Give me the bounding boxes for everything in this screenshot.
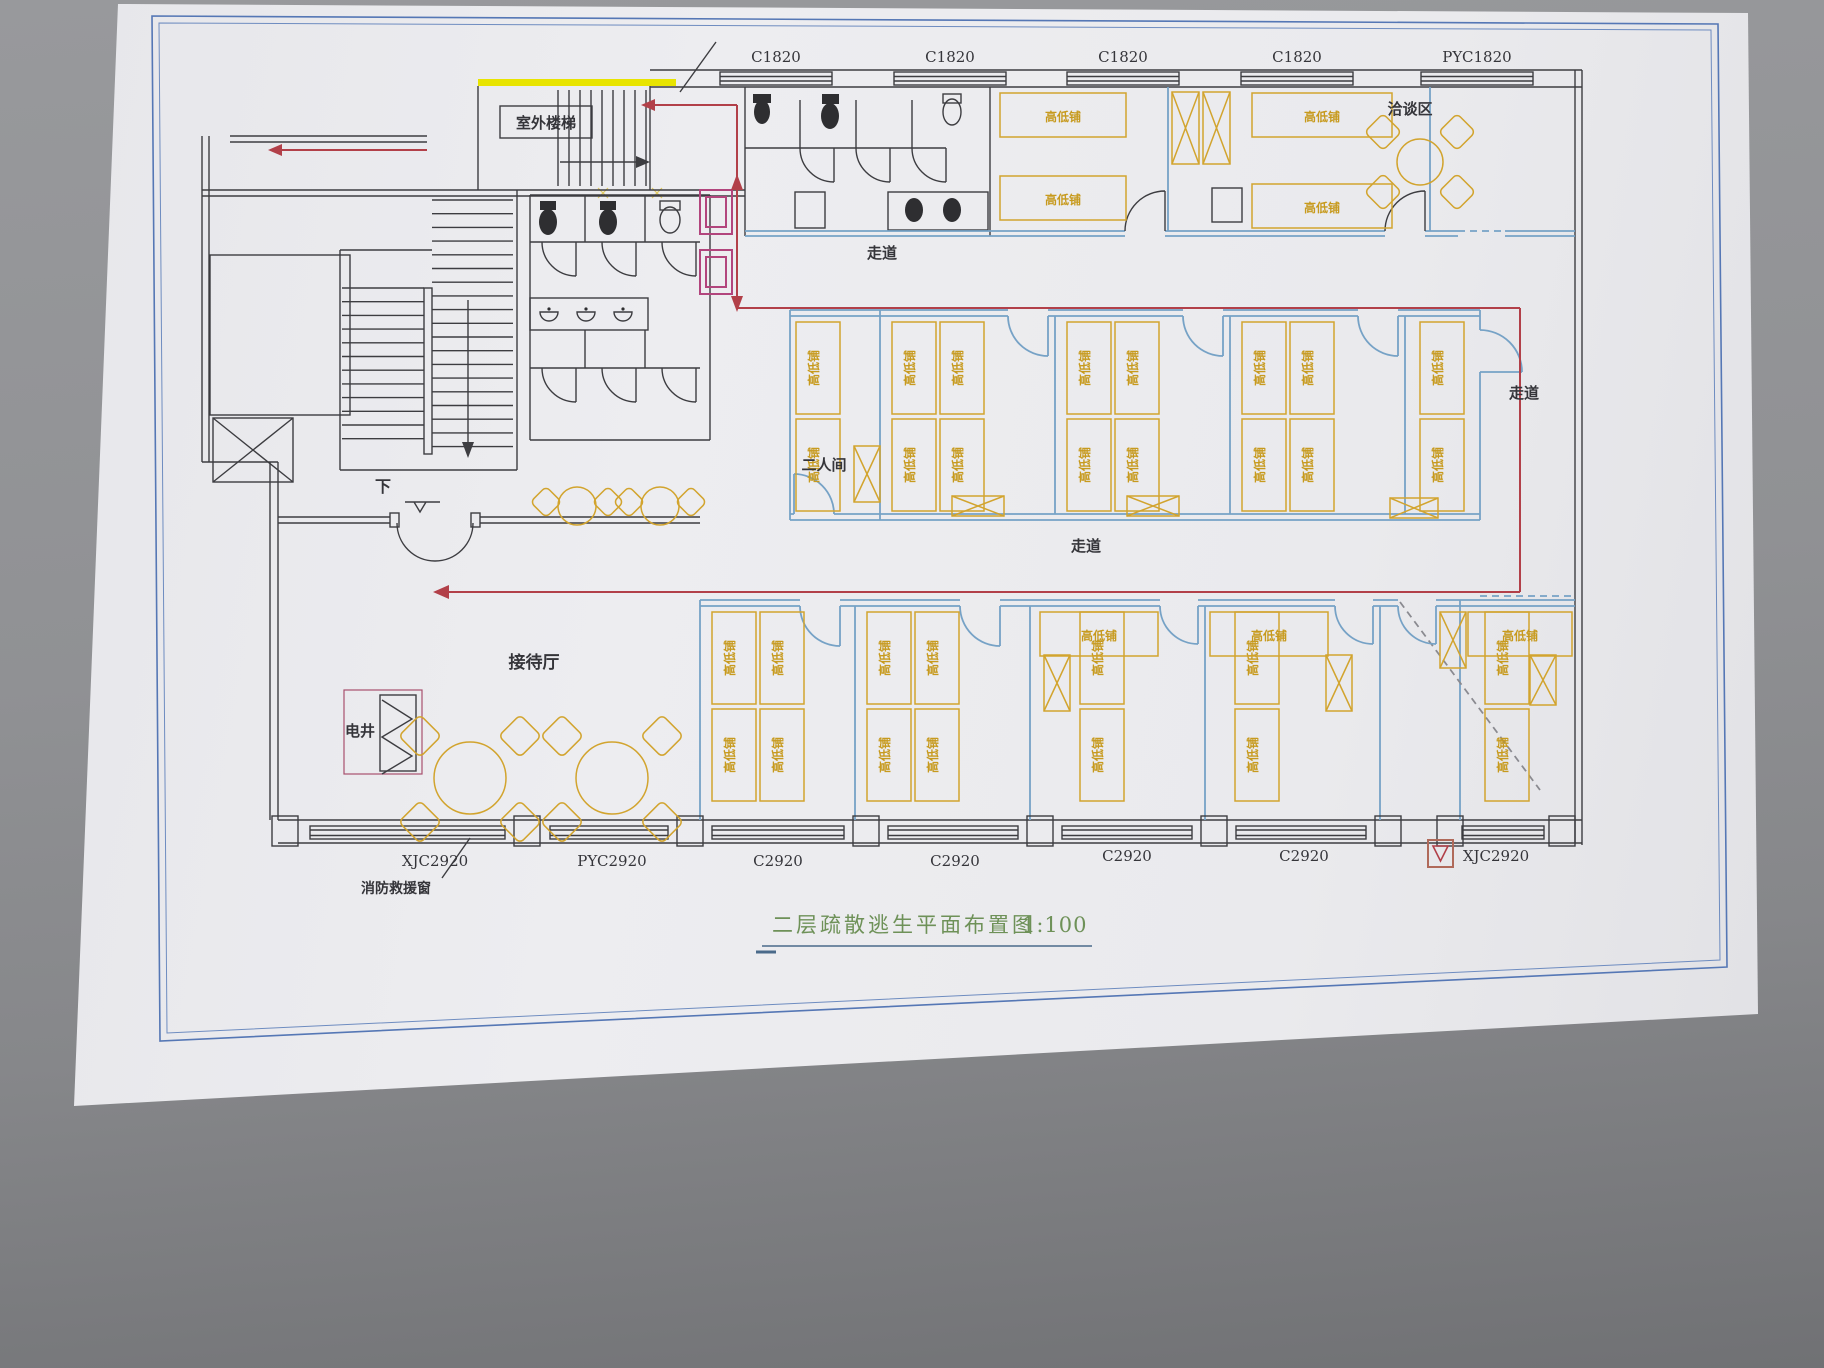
toilet-icon: [660, 207, 680, 233]
route-arrow-left: [433, 585, 449, 599]
chair: [675, 486, 706, 517]
bunk-bed-label: 高低铺: [722, 640, 737, 676]
bunk-bed-label: 高低铺: [770, 640, 785, 676]
bunk-bed-label: 高低铺: [1045, 109, 1081, 124]
room-label-corridor: 走道: [867, 244, 897, 262]
round-table: [558, 487, 596, 525]
route-arrow-left: [268, 144, 282, 156]
window-glyph: [310, 826, 505, 839]
window-label: C1820: [1098, 48, 1148, 66]
chair: [641, 715, 683, 757]
north-band-partitions: [745, 87, 1575, 236]
window-label: C2920: [930, 852, 980, 870]
bunk-bed-label: 高低铺: [1252, 447, 1267, 483]
bunk-bed-label: 高低铺: [1252, 350, 1267, 386]
bunk-bed-label: 高低铺: [1081, 628, 1117, 643]
bunk-bed-label: 高低铺: [902, 447, 917, 483]
window-glyph: [888, 826, 1018, 839]
doors: [542, 148, 1522, 646]
bunk-bed-label: 高低铺: [925, 737, 940, 773]
route-arrow-up: [731, 174, 743, 190]
urinal-icon: [540, 201, 556, 210]
chair: [399, 801, 441, 843]
bunk-bed-label: 高低铺: [1495, 737, 1510, 773]
window-label: C2920: [1279, 847, 1329, 865]
route-arrow-left: [641, 99, 655, 111]
fire-rescue-marker: [1428, 840, 1453, 867]
chair: [499, 715, 541, 757]
bunk-bed-label: 高低铺: [1495, 640, 1510, 676]
round-table: [434, 742, 506, 814]
bunk-bed-label: 高低铺: [877, 640, 892, 676]
round-table: [576, 742, 648, 814]
bunk-bed-label: 高低铺: [1125, 350, 1140, 386]
bunk-bed-label: 高低铺: [806, 350, 821, 386]
interior-stair: [342, 200, 513, 512]
window-label: C2920: [1102, 847, 1152, 865]
outdoor-stair: [478, 86, 650, 190]
leader-lines: [442, 42, 716, 878]
room-label-outdoor-stair: 室外楼梯: [516, 114, 576, 132]
window-glyph: [1062, 826, 1192, 839]
route-arrow-down: [731, 296, 743, 312]
window-glyph: [1241, 72, 1353, 85]
room-label-negotiation-area: 洽谈区: [1387, 100, 1432, 118]
window-label: PYC1820: [1442, 48, 1511, 66]
bunk-bed-label: 高低铺: [1245, 640, 1260, 676]
bunk-bed-label: 高低铺: [1430, 350, 1445, 386]
room-label-corridor: 走道: [1509, 384, 1539, 402]
room-label-electric-shaft: 电井: [345, 722, 375, 740]
bunk-bed-label: 高低铺: [950, 447, 965, 483]
window-glyph: [712, 826, 844, 839]
stair-down-arrow: [462, 442, 474, 458]
bunk-bed-label: 高低铺: [1300, 350, 1315, 386]
bunk-bed-label: 高低铺: [1304, 109, 1340, 124]
chair: [592, 486, 623, 517]
level-marker: [405, 502, 440, 512]
bunk-bed-label: 高低铺: [950, 350, 965, 386]
drawing-title: 二层疏散逃生平面布置图 1:100: [756, 913, 1092, 952]
bunk-bed-label: 高低铺: [1045, 192, 1081, 207]
evacuation-route: [268, 99, 1520, 599]
round-table: [641, 487, 679, 525]
urinal-icon: [822, 94, 839, 104]
chair: [541, 801, 583, 843]
window-label: C1820: [1272, 48, 1322, 66]
sink-icons: [540, 307, 632, 321]
bunk-bed-label: 高低铺: [1125, 447, 1140, 483]
title-text: 二层疏散逃生平面布置图: [772, 913, 1036, 937]
window-glyph: [1421, 72, 1533, 85]
room-label-corridor: 走道: [1071, 537, 1101, 555]
service-shafts: [344, 190, 732, 774]
window-glyph: [894, 72, 1006, 85]
window-glyph: [1067, 72, 1179, 85]
bunk-bed-label: 高低铺: [1300, 447, 1315, 483]
title-scale: 1:100: [1022, 913, 1088, 937]
window-glyph: [720, 72, 832, 85]
bunk-bed-label: 高低铺: [1077, 447, 1092, 483]
double-entrance-door: [390, 513, 480, 561]
chair: [1365, 174, 1402, 211]
fire-rescue-window-note: 消防救援窗: [361, 880, 431, 897]
window-label: PYC2920: [577, 852, 646, 870]
chair: [613, 486, 644, 517]
bunk-bed-label: 高低铺: [1245, 737, 1260, 773]
bunk-bed-label: 高低铺: [902, 350, 917, 386]
bunk-bed-label: 高低铺: [925, 640, 940, 676]
window-label: C1820: [925, 48, 975, 66]
chair: [1365, 114, 1402, 151]
floor-plan-drawing: 高低铺高低铺高低铺高低铺高低铺高低铺高低铺高低铺高低铺高低铺高低铺高低铺高低铺高…: [0, 0, 1824, 1368]
bunk-bed-label: 高低铺: [1251, 628, 1287, 643]
window-label: XJC2920: [402, 852, 468, 870]
chair: [530, 486, 561, 517]
window-glyph: [1462, 826, 1544, 839]
chair: [1439, 114, 1476, 151]
bottom-band-partitions: [700, 600, 1575, 820]
window-label: XJC2920: [1463, 847, 1529, 865]
bunk-bed-label: 高低铺: [770, 737, 785, 773]
window-label: C1820: [751, 48, 801, 66]
bunk-bed-label: 高低铺: [1077, 350, 1092, 386]
round-table: [1397, 139, 1443, 185]
window-glyph: [1236, 826, 1366, 839]
stair-down-label: 下: [375, 477, 391, 496]
urinal-icon: [600, 201, 616, 210]
room-label-two-person-room: 二人间: [801, 456, 846, 474]
stair-direction-arrow: [636, 156, 650, 168]
wash-stand: [1212, 188, 1242, 222]
bunk-bed-label: 高低铺: [1090, 737, 1105, 773]
bunk-bed-label: 高低铺: [1304, 200, 1340, 215]
toilet-icon: [905, 198, 923, 222]
bunk-bed-label: 高低铺: [1430, 447, 1445, 483]
bunk-bed-label: 高低铺: [1502, 628, 1538, 643]
chair: [541, 715, 583, 757]
photo-of-floor-plan: 高低铺高低铺高低铺高低铺高低铺高低铺高低铺高低铺高低铺高低铺高低铺高低铺高低铺高…: [0, 0, 1824, 1368]
room-label-reception-hall: 接待厅: [509, 652, 560, 673]
window-label: C2920: [753, 852, 803, 870]
chair: [1439, 174, 1476, 211]
toilet-icon: [754, 100, 770, 124]
bunk-bed-label: 高低铺: [877, 737, 892, 773]
bunk-bed-label: 高低铺: [722, 737, 737, 773]
bunk-bed-label: 高低铺: [1090, 640, 1105, 676]
toilet-icon: [943, 198, 961, 222]
